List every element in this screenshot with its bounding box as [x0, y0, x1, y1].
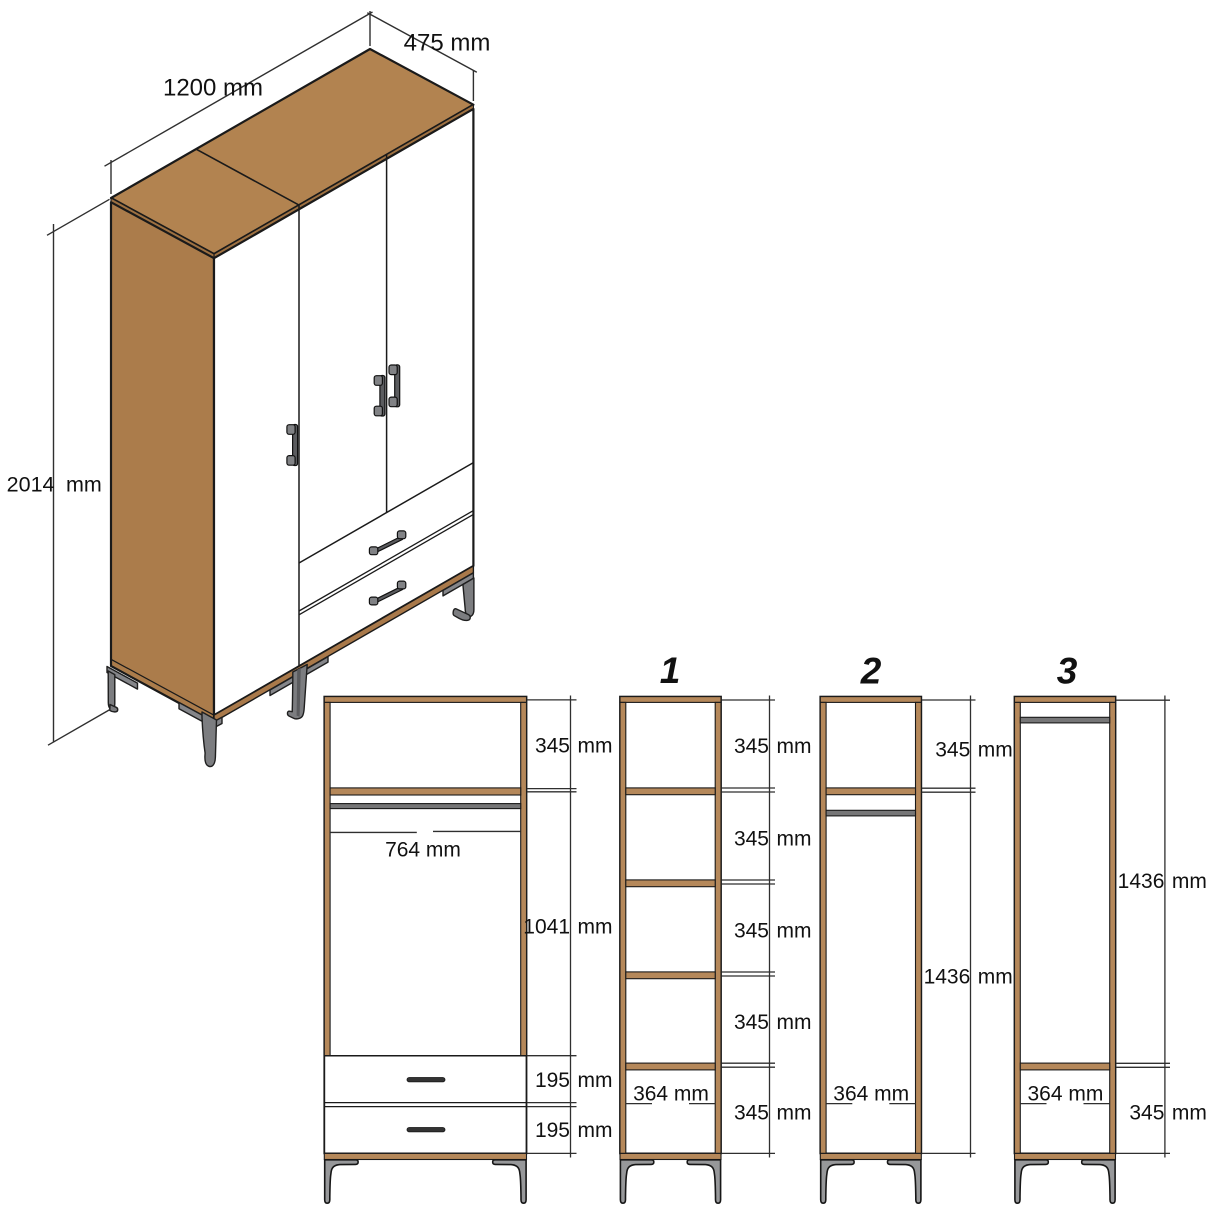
svg-text:mm: mm [978, 966, 1013, 989]
svg-text:345: 345 [734, 827, 769, 850]
svg-text:mm: mm [578, 1119, 613, 1142]
svg-text:mm: mm [66, 473, 102, 497]
svg-text:1436: 1436 [1118, 870, 1165, 893]
svg-text:475 mm: 475 mm [404, 30, 491, 57]
svg-text:mm: mm [578, 735, 613, 758]
svg-text:195: 195 [535, 1119, 570, 1142]
svg-text:364 mm: 364 mm [833, 1082, 909, 1105]
svg-text:345: 345 [1129, 1102, 1164, 1125]
svg-text:mm: mm [777, 1102, 812, 1125]
svg-text:1200 mm: 1200 mm [163, 75, 263, 102]
svg-text:mm: mm [978, 738, 1013, 761]
svg-text:1041: 1041 [523, 916, 570, 939]
svg-text:mm: mm [578, 1069, 613, 1092]
svg-text:345: 345 [734, 919, 769, 942]
svg-text:364 mm: 364 mm [633, 1082, 709, 1105]
svg-text:mm: mm [777, 919, 812, 942]
svg-text:mm: mm [777, 1011, 812, 1034]
svg-text:345: 345 [535, 735, 570, 758]
svg-text:mm: mm [578, 916, 613, 939]
svg-text:1436: 1436 [924, 966, 971, 989]
svg-text:mm: mm [777, 735, 812, 758]
svg-text:345: 345 [734, 1011, 769, 1034]
svg-text:1: 1 [660, 650, 681, 691]
svg-text:345: 345 [734, 735, 769, 758]
svg-text:mm: mm [1172, 1102, 1207, 1125]
svg-text:3: 3 [1057, 651, 1078, 692]
svg-text:mm: mm [1172, 870, 1207, 893]
svg-text:345: 345 [734, 1102, 769, 1125]
svg-text:345: 345 [935, 738, 970, 761]
svg-text:2014: 2014 [7, 473, 55, 497]
svg-text:764 mm: 764 mm [385, 839, 461, 862]
svg-text:2: 2 [860, 651, 882, 692]
svg-text:364 mm: 364 mm [1027, 1082, 1103, 1105]
svg-text:195: 195 [535, 1069, 570, 1092]
svg-text:mm: mm [777, 827, 812, 850]
